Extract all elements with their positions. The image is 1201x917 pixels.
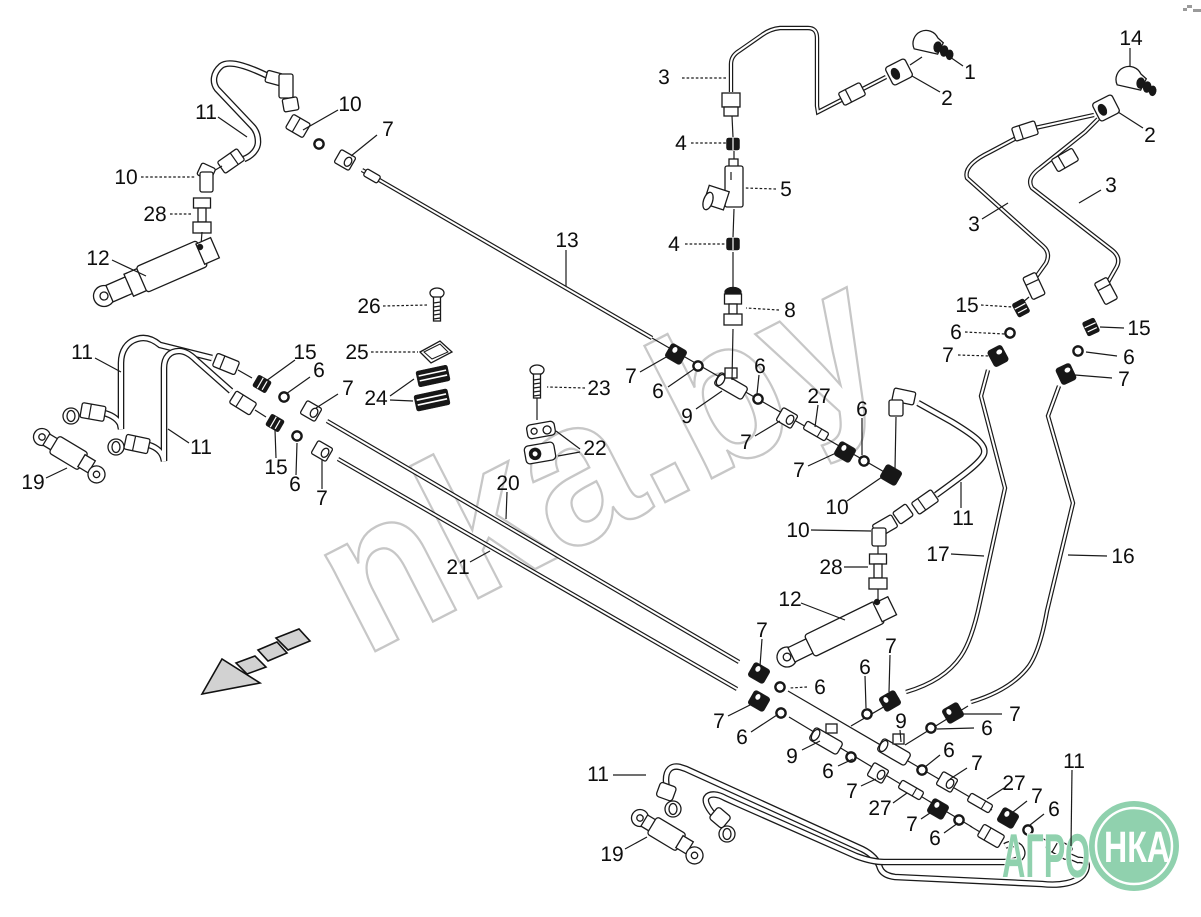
svg-text:7: 7 [713, 710, 725, 733]
svg-text:3: 3 [1105, 174, 1117, 197]
svg-text:6: 6 [814, 676, 826, 699]
svg-text:6: 6 [822, 760, 834, 783]
svg-text:10: 10 [114, 166, 137, 189]
svg-text:17: 17 [926, 543, 949, 566]
svg-text:10: 10 [338, 93, 361, 116]
svg-text:6: 6 [652, 380, 664, 403]
svg-text:28: 28 [143, 203, 166, 226]
svg-text:25: 25 [345, 341, 368, 364]
svg-text:11: 11 [952, 507, 974, 530]
svg-text:4: 4 [675, 132, 687, 155]
svg-text:5: 5 [780, 178, 792, 201]
svg-text:7: 7 [1118, 368, 1130, 391]
svg-text:7: 7 [740, 431, 752, 454]
svg-text:6: 6 [943, 739, 955, 762]
svg-text:8: 8 [784, 299, 796, 322]
svg-text:2: 2 [941, 87, 953, 110]
svg-text:6: 6 [736, 726, 748, 749]
svg-text:11: 11 [587, 763, 609, 786]
svg-text:6: 6 [1123, 346, 1135, 369]
svg-text:10: 10 [786, 519, 809, 542]
svg-text:7: 7 [885, 635, 897, 658]
svg-text:19: 19 [21, 471, 44, 494]
svg-text:7: 7 [971, 752, 983, 775]
svg-text:15: 15 [1127, 317, 1150, 340]
svg-text:20: 20 [496, 472, 519, 495]
svg-text:7: 7 [756, 619, 768, 642]
svg-text:6: 6 [859, 656, 871, 679]
svg-text:21: 21 [446, 556, 469, 579]
svg-text:16: 16 [1111, 545, 1134, 568]
svg-text:7: 7 [382, 118, 394, 141]
svg-text:6: 6 [856, 398, 868, 421]
svg-text:12: 12 [86, 247, 109, 270]
svg-text:7: 7 [625, 365, 637, 388]
svg-text:6: 6 [289, 473, 301, 496]
svg-text:7: 7 [1031, 785, 1043, 808]
svg-text:9: 9 [786, 745, 798, 768]
svg-text:9: 9 [895, 710, 907, 733]
svg-text:14: 14 [1119, 27, 1143, 50]
svg-text:27: 27 [807, 385, 830, 408]
svg-text:1: 1 [964, 61, 976, 84]
svg-text:15: 15 [955, 294, 978, 317]
svg-text:7: 7 [316, 487, 328, 510]
svg-text:6: 6 [981, 717, 993, 740]
svg-text:7: 7 [942, 344, 954, 367]
svg-text:7: 7 [342, 377, 354, 400]
svg-text:6: 6 [313, 359, 325, 382]
svg-text:АГРО: АГРО [1002, 822, 1090, 891]
svg-text:6: 6 [950, 321, 962, 344]
svg-text:23: 23 [587, 377, 610, 400]
svg-text:19: 19 [600, 843, 623, 866]
svg-text:11: 11 [195, 101, 217, 124]
svg-text:6: 6 [754, 355, 766, 378]
svg-text:11: 11 [1063, 750, 1085, 773]
svg-text:2: 2 [1144, 124, 1156, 147]
svg-text:9: 9 [681, 405, 693, 428]
svg-text:10: 10 [825, 496, 848, 519]
svg-text:22: 22 [583, 437, 606, 460]
svg-text:3: 3 [658, 66, 670, 89]
svg-text:11: 11 [71, 341, 93, 364]
svg-text:28: 28 [819, 556, 842, 579]
svg-text:7: 7 [846, 780, 858, 803]
svg-text:24: 24 [364, 387, 388, 410]
svg-text:27: 27 [1002, 772, 1025, 795]
svg-text:3: 3 [968, 213, 980, 236]
svg-text:НКА: НКА [1104, 823, 1170, 872]
svg-text:15: 15 [264, 456, 287, 479]
svg-text:6: 6 [929, 827, 941, 850]
svg-text:27: 27 [868, 797, 891, 820]
svg-text:4: 4 [668, 233, 680, 256]
svg-text:11: 11 [190, 436, 212, 459]
svg-text:26: 26 [357, 295, 380, 318]
svg-text:7: 7 [793, 459, 805, 482]
svg-text:6: 6 [1048, 798, 1060, 821]
svg-text:7: 7 [906, 813, 918, 836]
svg-text:12: 12 [778, 588, 801, 611]
svg-text:13: 13 [555, 229, 578, 252]
svg-text:7: 7 [1009, 703, 1021, 726]
